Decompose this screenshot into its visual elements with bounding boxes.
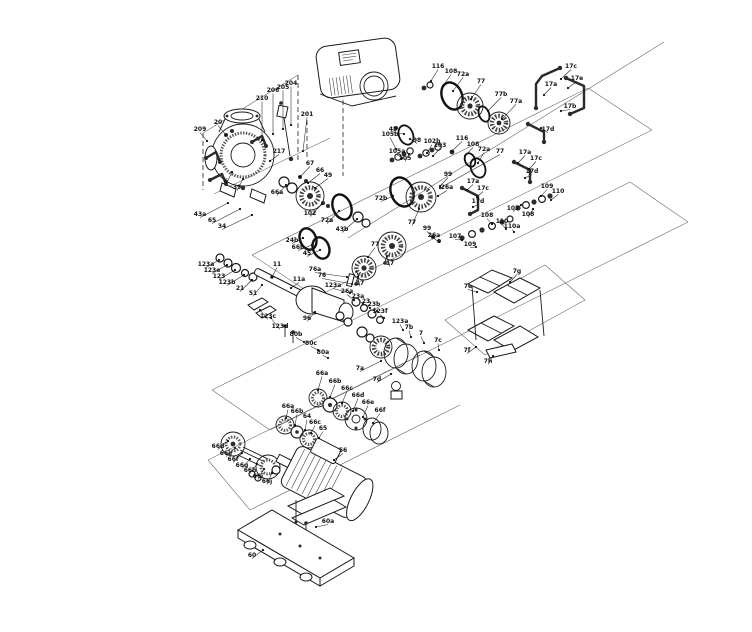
- svg-text:11a: 11a: [293, 276, 305, 283]
- svg-text:65: 65: [319, 425, 327, 432]
- svg-text:123f: 123f: [372, 308, 388, 315]
- svg-text:98: 98: [413, 137, 421, 144]
- part-label-217: 217: [269, 148, 285, 162]
- small-foot-part: [391, 382, 402, 400]
- cover-panels: [468, 270, 544, 358]
- svg-text:72a: 72a: [321, 217, 333, 224]
- control-box: [315, 37, 401, 106]
- part-label-116: 116: [451, 135, 468, 152]
- svg-text:66e: 66e: [362, 399, 374, 406]
- svg-text:77: 77: [371, 241, 379, 248]
- coupling-row-1: [309, 389, 388, 444]
- svg-text:7f: 7f: [464, 347, 471, 354]
- part-label-66a: 66a: [316, 370, 328, 391]
- svg-text:72a: 72a: [457, 71, 469, 78]
- part-label-7b: 7b: [405, 324, 414, 338]
- svg-text:66c: 66c: [341, 385, 353, 392]
- svg-text:105a: 105a: [389, 148, 406, 155]
- part-label-7: 7: [419, 330, 425, 344]
- svg-text:201: 201: [301, 111, 314, 118]
- svg-text:77a: 77a: [510, 98, 522, 105]
- part-label-108: 108: [522, 208, 535, 218]
- svg-text:80b: 80b: [290, 331, 303, 338]
- svg-text:110a: 110a: [504, 223, 521, 230]
- bearing-support: [248, 298, 295, 343]
- svg-text:7e: 7e: [464, 283, 472, 290]
- svg-text:17c: 17c: [565, 63, 577, 70]
- part-label-17a: 17a: [543, 81, 557, 96]
- part-label-110a: 110a: [504, 223, 521, 233]
- part-label-51: 51: [249, 284, 263, 297]
- svg-text:7d: 7d: [373, 376, 381, 383]
- svg-text:17a: 17a: [467, 178, 479, 185]
- labels-layer: 2092021020620520420121763966a43a65346766…: [194, 63, 583, 559]
- part-label-108: 108: [481, 212, 494, 225]
- sleeve-chambers: [357, 327, 446, 387]
- svg-text:7b: 7b: [405, 324, 414, 331]
- svg-text:107: 107: [449, 233, 462, 240]
- svg-text:108: 108: [445, 68, 458, 75]
- construction-lines: [203, 42, 688, 510]
- svg-text:43b: 43b: [336, 226, 349, 233]
- svg-text:123b: 123b: [219, 279, 237, 286]
- exploded-diagram-canvas: 2092021020620520420121763966a43a65346766…: [0, 0, 752, 632]
- part-label-209: 209: [194, 126, 208, 142]
- part-label-17a: 17a: [517, 149, 531, 164]
- svg-text:56: 56: [339, 447, 347, 454]
- part-label-65: 65: [318, 425, 327, 439]
- svg-text:217: 217: [273, 148, 286, 155]
- part-label-77b: 77b: [487, 91, 508, 112]
- part-label-43a: 43a: [194, 202, 229, 218]
- svg-text:60: 60: [248, 552, 256, 559]
- svg-text:17d: 17d: [526, 168, 539, 175]
- svg-text:21: 21: [236, 285, 244, 292]
- svg-text:66d: 66d: [352, 392, 365, 399]
- part-label-76a: 76a: [309, 266, 348, 278]
- part-label-206: 206: [267, 87, 280, 135]
- svg-text:7c: 7c: [434, 337, 442, 344]
- svg-text:7g: 7g: [513, 268, 521, 275]
- svg-text:123c: 123c: [260, 313, 277, 320]
- svg-text:26a: 26a: [428, 232, 440, 239]
- top-ring-set: [394, 79, 510, 147]
- baseplate: [238, 510, 354, 586]
- part-label-7a: 7a: [356, 360, 382, 372]
- svg-text:17: 17: [356, 280, 364, 287]
- svg-text:204: 204: [285, 80, 298, 87]
- svg-text:210: 210: [256, 95, 269, 102]
- svg-text:43a: 43a: [194, 211, 206, 218]
- svg-text:77: 77: [496, 148, 504, 155]
- svg-text:20: 20: [214, 119, 222, 126]
- part-label-17d: 17d: [540, 126, 554, 133]
- svg-text:11: 11: [273, 261, 281, 268]
- part-label-49: 49: [314, 172, 332, 189]
- svg-text:66b: 66b: [329, 378, 342, 385]
- svg-text:108: 108: [481, 212, 494, 219]
- svg-text:77: 77: [477, 78, 485, 85]
- part-label-17: 17: [356, 276, 364, 287]
- part-label-7d: 7d: [373, 373, 392, 383]
- svg-text:66f: 66f: [375, 407, 386, 414]
- svg-text:108: 108: [522, 211, 535, 218]
- part-label-66: 66: [307, 167, 324, 184]
- svg-text:77: 77: [408, 219, 416, 226]
- svg-text:107: 107: [507, 205, 520, 212]
- svg-text:17d: 17d: [472, 198, 485, 205]
- svg-text:6: 6: [224, 178, 228, 185]
- svg-text:99: 99: [423, 225, 431, 232]
- svg-text:103: 103: [434, 142, 447, 149]
- svg-text:24b: 24b: [286, 237, 299, 244]
- svg-text:23b: 23b: [368, 301, 381, 308]
- svg-text:99: 99: [444, 171, 452, 178]
- part-label-17c: 17c: [476, 185, 489, 198]
- part-label-109: 109: [464, 241, 477, 248]
- svg-text:80a: 80a: [317, 349, 329, 356]
- svg-text:17b: 17b: [564, 103, 577, 110]
- svg-text:17d: 17d: [542, 126, 555, 133]
- part-label-110: 110: [550, 188, 564, 201]
- part-label-7f: 7f: [464, 346, 477, 354]
- svg-text:102: 102: [304, 210, 317, 217]
- svg-text:60a: 60a: [322, 518, 334, 525]
- svg-text:76: 76: [318, 272, 326, 279]
- svg-text:123a: 123a: [325, 282, 342, 289]
- svg-text:17c: 17c: [477, 185, 489, 192]
- svg-text:110: 110: [552, 188, 565, 195]
- svg-text:17a: 17a: [545, 81, 557, 88]
- part-label-105: 105: [399, 153, 412, 162]
- svg-text:34: 34: [218, 223, 226, 230]
- svg-text:65: 65: [208, 217, 216, 224]
- svg-text:26a: 26a: [441, 184, 453, 191]
- part-label-65: 65: [208, 208, 241, 224]
- part-label-107: 107: [449, 233, 463, 241]
- svg-text:66a: 66a: [316, 370, 328, 377]
- svg-text:17e: 17e: [571, 75, 583, 82]
- svg-text:105b: 105b: [382, 131, 400, 138]
- svg-text:17c: 17c: [530, 155, 542, 162]
- part-label-17b: 17b: [560, 103, 577, 112]
- impeller-disc: [296, 182, 330, 210]
- part-label-77a: 77a: [501, 98, 522, 120]
- svg-text:209: 209: [194, 126, 207, 133]
- svg-text:77b: 77b: [495, 91, 508, 98]
- svg-text:66j: 66j: [262, 478, 272, 485]
- part-label-67: 67: [299, 160, 314, 178]
- part-label-116: 116: [430, 63, 444, 82]
- part-label-80b: 80b: [290, 331, 305, 343]
- svg-text:72a: 72a: [478, 146, 490, 153]
- svg-text:66a: 66a: [271, 189, 283, 196]
- svg-text:7h: 7h: [484, 358, 492, 365]
- shaft-assembly: [216, 254, 303, 297]
- svg-text:7a: 7a: [356, 365, 364, 372]
- exploded-diagram: 2092021020620520420121763966a43a65346766…: [0, 0, 752, 632]
- part-label-7c: 7c: [434, 337, 442, 351]
- svg-text:123d: 123d: [272, 323, 289, 330]
- svg-text:72b: 72b: [375, 195, 388, 202]
- svg-text:109: 109: [464, 241, 477, 248]
- svg-text:45: 45: [303, 250, 311, 257]
- svg-text:67: 67: [306, 160, 314, 167]
- svg-text:51: 51: [249, 290, 257, 297]
- svg-text:49: 49: [324, 172, 332, 179]
- svg-text:105: 105: [399, 155, 412, 162]
- svg-text:80c: 80c: [305, 340, 317, 347]
- part-label-11a: 11a: [290, 276, 305, 289]
- part-label-66e: 66e: [362, 399, 374, 418]
- svg-text:116: 116: [432, 63, 445, 70]
- svg-text:96: 96: [303, 315, 311, 322]
- svg-text:66d: 66d: [212, 443, 225, 450]
- part-label-80a: 80a: [317, 349, 329, 359]
- part-label-34: 34: [218, 214, 253, 230]
- part-label-26a: 26a: [428, 232, 440, 243]
- part-label-77: 77: [367, 241, 379, 258]
- svg-text:17: 17: [386, 260, 394, 267]
- svg-text:39: 39: [233, 184, 241, 191]
- part-label-204: 204: [285, 80, 298, 126]
- svg-text:7: 7: [419, 330, 423, 337]
